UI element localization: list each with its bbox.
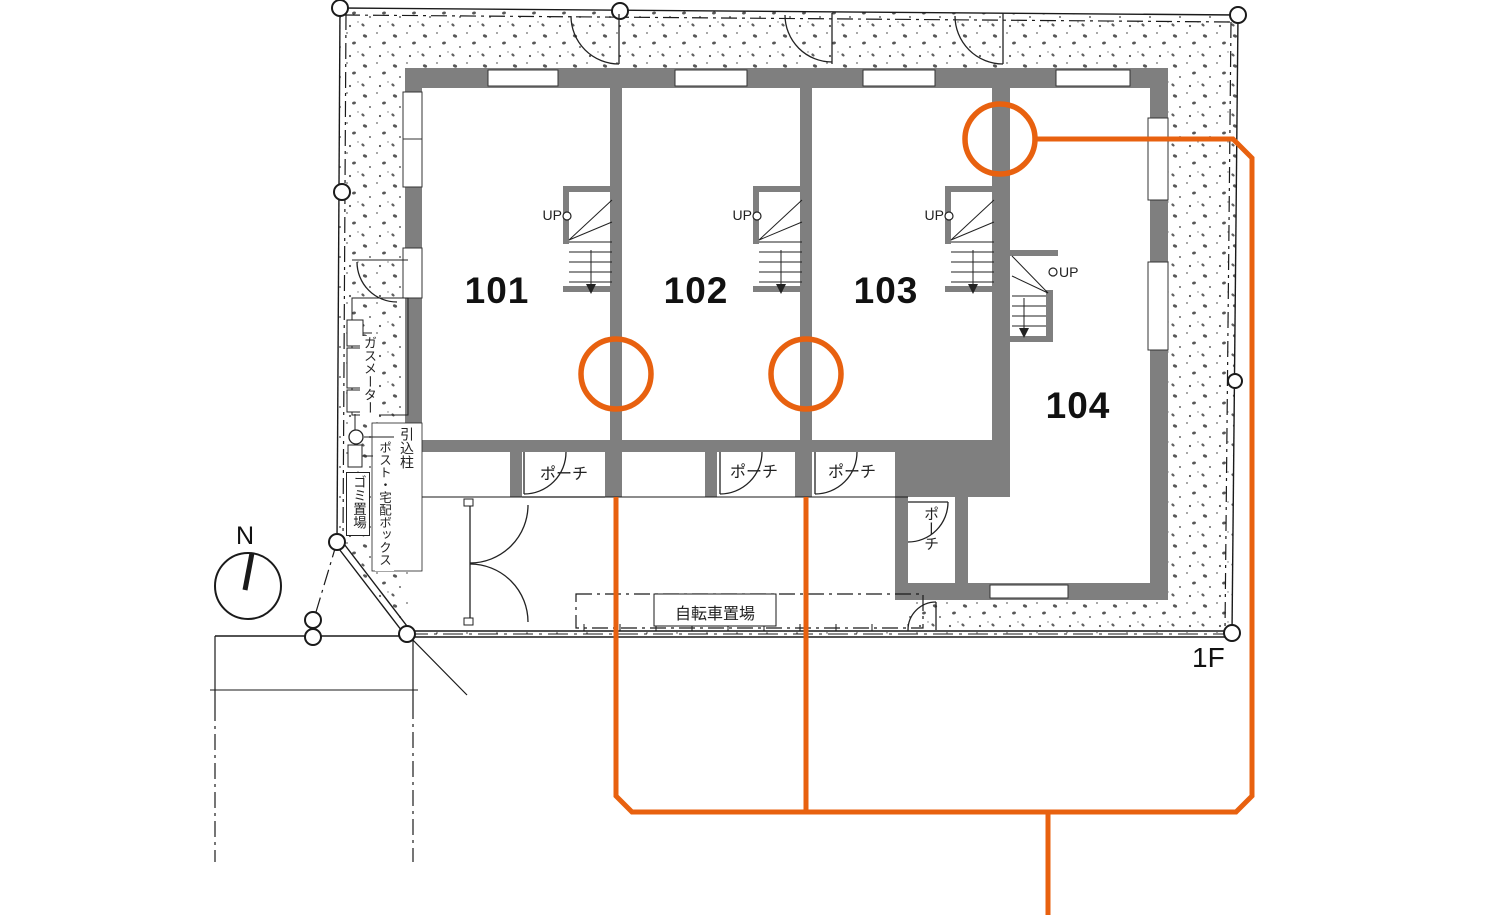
post-box-symbol: [348, 445, 362, 467]
building-footprint: [405, 68, 1168, 632]
window-104-east-1: [1148, 118, 1168, 200]
window-104-south: [990, 585, 1068, 598]
compass-n-label: N: [236, 522, 254, 551]
gas-meter-label: ガスメーター: [360, 336, 379, 422]
window-104-east-2: [1148, 262, 1168, 350]
service-pole-label: 引込柱: [397, 427, 417, 475]
unit-label-101: 101: [452, 270, 542, 312]
road-lines: [210, 634, 467, 862]
post-delivery-box-label: ポスト・宅配ボックス: [375, 441, 394, 571]
garbage-area-label: ゴミ置場: [346, 472, 370, 536]
porch-label-101: ポーチ: [528, 460, 600, 484]
window-101-west-2: [403, 248, 422, 298]
window-101-north: [488, 70, 558, 86]
stairs-up-label-104: UP: [1059, 264, 1089, 280]
service-pole-symbol: [349, 430, 363, 444]
window-102-north: [675, 70, 747, 86]
porch-label-103: ポーチ: [816, 458, 888, 482]
stairs-up-label-102: UP: [726, 207, 752, 223]
up-marker-102: [753, 212, 761, 220]
compass-needle: [245, 553, 252, 590]
porch-label-102: ポーチ: [718, 458, 790, 482]
stairs-up-label-101: UP: [536, 207, 562, 223]
floor-label: 1F: [1192, 642, 1225, 674]
bicycle-parking-label: 自転車置場: [656, 600, 774, 624]
floor-plan-1f: 101 102 103 104 UP UP UP UP ポーチ ポーチ ポーチ …: [0, 0, 1500, 915]
window-104-north: [1056, 70, 1130, 86]
compass: [215, 553, 281, 619]
up-marker-104: [1049, 268, 1057, 276]
window-103-north: [863, 70, 935, 86]
up-marker-101: [563, 212, 571, 220]
unit-label-102: 102: [651, 270, 741, 312]
porch-label-104: ポーチ: [920, 506, 941, 580]
up-marker-103: [945, 212, 953, 220]
unit-label-103: 103: [841, 270, 931, 312]
unit-label-104: 104: [1033, 385, 1123, 427]
stairs-up-label-103: UP: [918, 207, 944, 223]
